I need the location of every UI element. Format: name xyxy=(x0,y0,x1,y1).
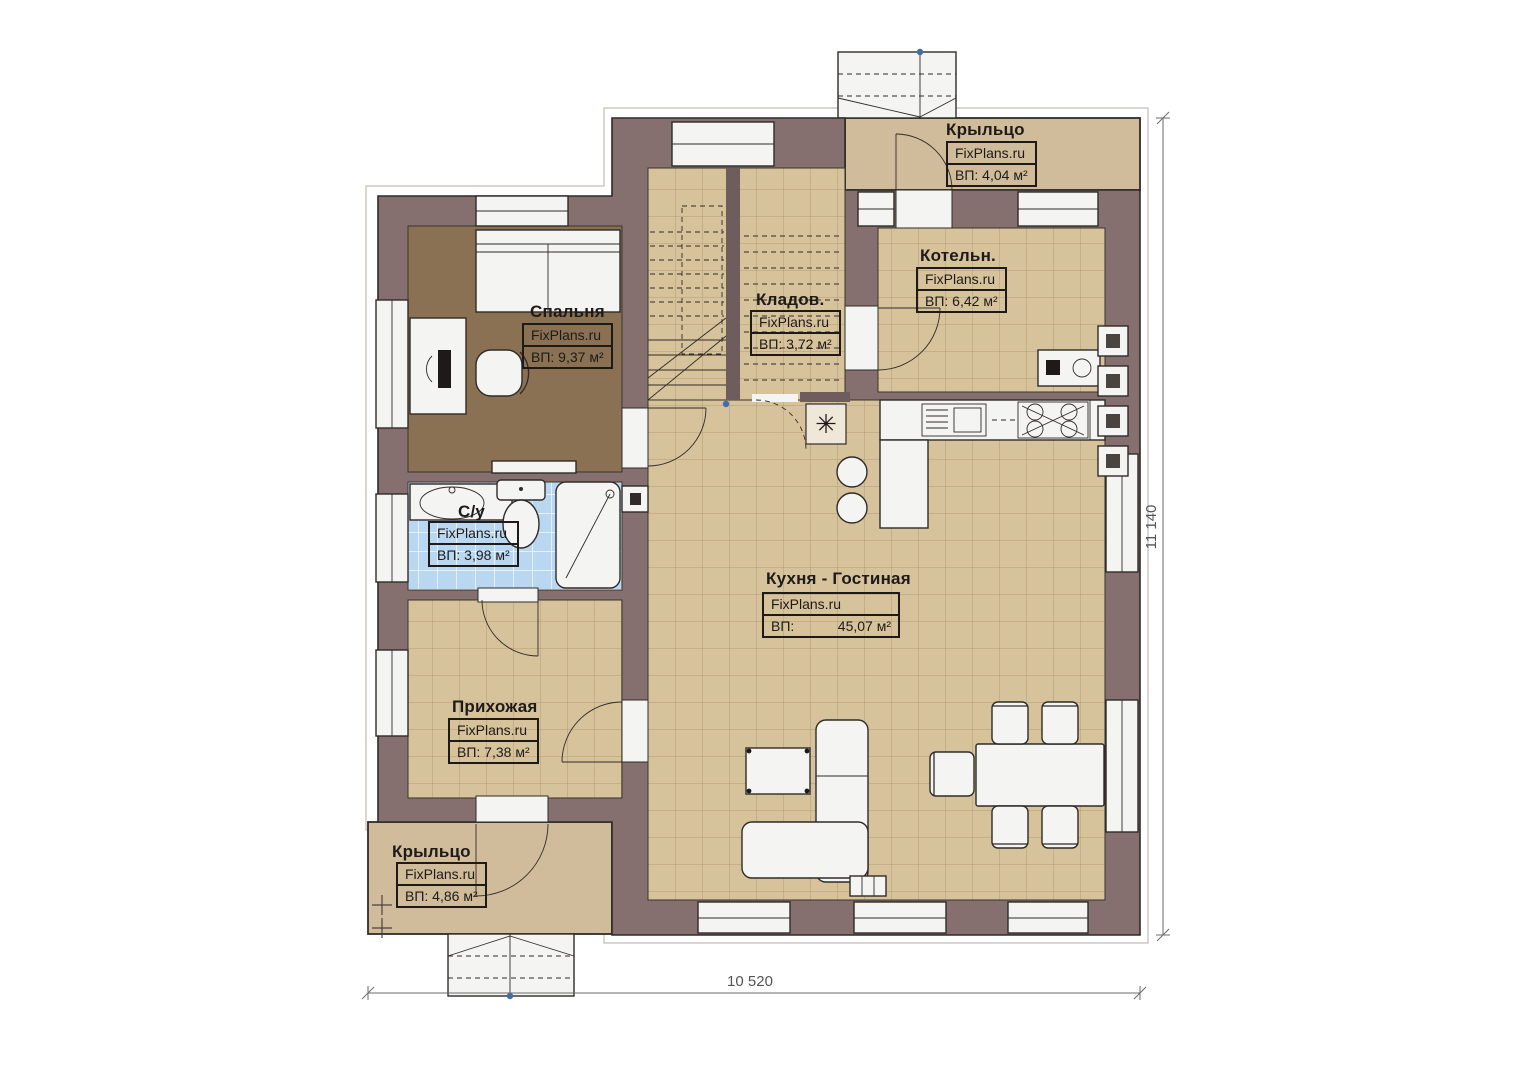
window xyxy=(672,122,774,166)
window xyxy=(854,902,946,933)
room-area: ВП: 3,72 м² xyxy=(752,334,839,354)
window xyxy=(376,650,408,736)
desk xyxy=(410,318,466,414)
watermark: FixPlans.ru xyxy=(948,143,1035,165)
coffee-table xyxy=(746,748,810,794)
watermark: FixPlans.ru xyxy=(398,864,485,886)
window xyxy=(376,300,408,428)
window xyxy=(376,494,408,582)
dimension-bottom-label: 10 520 xyxy=(727,973,773,990)
monitor xyxy=(438,350,451,388)
room-area-label: ВП: xyxy=(771,618,794,634)
room-label-porch-bottom: Крыльцо xyxy=(392,842,471,862)
room-area: ВП: 7,38 м² xyxy=(450,742,537,762)
room-kitchen-living-floor xyxy=(648,400,1105,900)
towel-rail xyxy=(492,461,576,473)
room-infobox-kitchen-living: FixPlans.ru ВП: 45,07 м² xyxy=(762,592,900,638)
room-label-boiler: Котельн. xyxy=(920,246,996,266)
watermark: FixPlans.ru xyxy=(430,523,517,545)
stair-middle-wall xyxy=(726,168,740,400)
room-area-value: 45,07 м² xyxy=(838,618,891,634)
level-marker-dot xyxy=(917,49,923,55)
entry-steps-top xyxy=(838,49,956,118)
room-infobox-storage: FixPlans.ru ВП: 3,72 м² xyxy=(750,310,841,356)
understair-wall xyxy=(800,392,850,402)
room-infobox-porch-bottom: FixPlans.ru ВП: 4,86 м² xyxy=(396,862,487,908)
level-marker-dot xyxy=(723,401,729,407)
boiler-unit xyxy=(1038,350,1100,386)
flue-symbol: ✳ xyxy=(806,404,846,444)
watermark: FixPlans.ru xyxy=(450,720,537,742)
room-label-porch-top: Крыльцо xyxy=(946,120,1025,140)
watermark: FixPlans.ru xyxy=(524,325,611,347)
room-area: ВП: 6,42 м² xyxy=(918,291,1005,311)
watermark: FixPlans.ru xyxy=(764,594,898,616)
window xyxy=(1018,192,1098,226)
room-label-kitchen-living: Кухня - Гостиная xyxy=(766,569,911,589)
shower xyxy=(556,482,620,588)
dimension-right-label: 11 140 xyxy=(1143,505,1160,550)
radiator xyxy=(850,876,886,896)
window xyxy=(1008,902,1088,933)
level-marker-dot xyxy=(507,993,513,999)
room-area: ВП: 3,98 м² xyxy=(430,545,517,565)
room-label-bedroom: Спальня xyxy=(530,302,605,322)
window xyxy=(858,192,894,226)
bed xyxy=(476,230,620,312)
watermark: FixPlans.ru xyxy=(918,269,1005,291)
room-infobox-bathroom: FixPlans.ru ВП: 3,98 м² xyxy=(428,521,519,567)
room-label-hallway: Прихожая xyxy=(452,697,537,717)
room-area: ВП: 9,37 м² xyxy=(524,347,611,367)
room-label-storage: Кладов. xyxy=(756,290,824,310)
wall-vent-niche xyxy=(622,486,648,512)
room-area: ВП: 4,04 м² xyxy=(948,165,1035,185)
dining-table xyxy=(976,744,1104,806)
room-area: ВП: 45,07 м² xyxy=(764,616,898,636)
room-label-bathroom: С/у xyxy=(458,502,485,522)
window xyxy=(1106,700,1138,832)
room-infobox-boiler: FixPlans.ru ВП: 6,42 м² xyxy=(916,267,1007,313)
kitchen-island xyxy=(880,440,928,528)
storage-door-gap xyxy=(752,394,798,402)
entry-steps-bottom xyxy=(448,934,574,999)
floor-plan-page: ✳ xyxy=(0,0,1528,1080)
room-infobox-porch-top: FixPlans.ru ВП: 4,04 м² xyxy=(946,141,1037,187)
window xyxy=(698,902,790,933)
room-area: ВП: 4,86 м² xyxy=(398,886,485,906)
dimension-right: 11 140 xyxy=(1143,112,1170,941)
flue-icon: ✳ xyxy=(815,409,837,439)
floor-plan-canvas: ✳ xyxy=(0,0,1528,1080)
watermark: FixPlans.ru xyxy=(752,312,839,334)
room-infobox-bedroom: FixPlans.ru ВП: 9,37 м² xyxy=(522,323,613,369)
room-infobox-hallway: FixPlans.ru ВП: 7,38 м² xyxy=(448,718,539,764)
window xyxy=(476,196,568,226)
kitchen-counter xyxy=(880,400,1105,440)
